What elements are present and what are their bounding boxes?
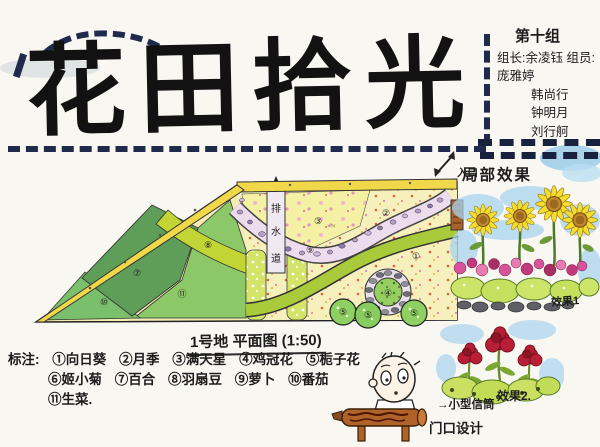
- legend-item: ⑪生菜.: [48, 390, 92, 410]
- zone-label: ①: [412, 251, 420, 261]
- channel-char: 排: [271, 202, 281, 215]
- legend-row: ⑪生菜.: [48, 390, 378, 410]
- zone-label: ⑤: [410, 308, 418, 318]
- sign-annotation: →小型信筒: [437, 396, 495, 412]
- effect1-label: 效果1: [550, 292, 579, 310]
- rose-band: [454, 258, 587, 276]
- sky-wash: [450, 186, 600, 292]
- legend-item: ⑥姬小菊: [48, 370, 102, 390]
- group-number: 第十组: [515, 28, 600, 47]
- cartoon-person: [369, 352, 420, 414]
- site-plan-drawing: × ×: [30, 150, 485, 330]
- design-annotation: 门口设计: [429, 417, 483, 437]
- zone-label: ⑤: [339, 307, 347, 317]
- legend-item: ③满天星: [172, 350, 226, 370]
- legend-item: ②月季: [119, 350, 160, 370]
- zone-label: ⑩: [100, 297, 108, 307]
- group-info-block: 第十组 组长:余凌钰 组员:庞雅婷 韩尚行 钟明月 刘行舸: [497, 28, 600, 141]
- dashed-border-vertical: [484, 34, 490, 146]
- zone-label: ⑧: [204, 240, 212, 250]
- legend-item: ⑧羽扇豆: [168, 370, 222, 390]
- member-name: 刘行舸: [531, 123, 600, 142]
- dashed-border-right-2: [480, 152, 598, 159]
- svg-text:× ×: × ×: [327, 224, 336, 230]
- zone-label: ③: [314, 216, 322, 226]
- legend-label: 标注:: [8, 350, 40, 370]
- legend-item: ⑨萝卜: [235, 370, 276, 390]
- legend-item: ⑦百合: [115, 370, 156, 390]
- poster-title: 花田拾光: [25, 31, 479, 145]
- member-name: 韩尚行: [531, 86, 600, 105]
- legend-row: 标注: ①向日葵 ②月季 ③满天星 ④鸡冠花 ⑤栀子花: [8, 350, 378, 370]
- legend-row: ⑥姬小菊 ⑦百合 ⑧羽扇豆 ⑨萝卜 ⑩番茄: [48, 370, 378, 390]
- zone-label: ②: [382, 208, 390, 218]
- legend-item: ⑩番茄: [288, 370, 329, 390]
- member-name: 钟明月: [531, 104, 600, 123]
- zone-label: ④: [384, 288, 392, 298]
- zone-label: ⑪: [177, 289, 186, 299]
- legend-block: 标注: ①向日葵 ②月季 ③满天星 ④鸡冠花 ⑤栀子花 ⑥姬小菊 ⑦百合 ⑧羽扇…: [8, 350, 378, 410]
- zone-label: ⑤: [364, 310, 372, 320]
- zone-label: ⑦: [133, 268, 141, 278]
- zone-label: ⑨: [306, 245, 314, 255]
- legend-item: ④鸡冠花: [239, 350, 293, 370]
- effect2-label: 效果2.: [497, 387, 531, 404]
- log-signboard: [332, 409, 427, 441]
- poster-canvas: 花田拾光 第十组 组长:余凌钰 组员:庞雅婷 韩尚行 钟明月 刘行舸: [0, 0, 600, 447]
- channel-char: 水: [271, 226, 281, 238]
- leader-line: 组长:余凌钰: [497, 51, 563, 65]
- legend-item: ①向日葵: [52, 350, 106, 370]
- channel-char: 道: [271, 252, 281, 265]
- entrance-sign-cartoon: [330, 352, 445, 444]
